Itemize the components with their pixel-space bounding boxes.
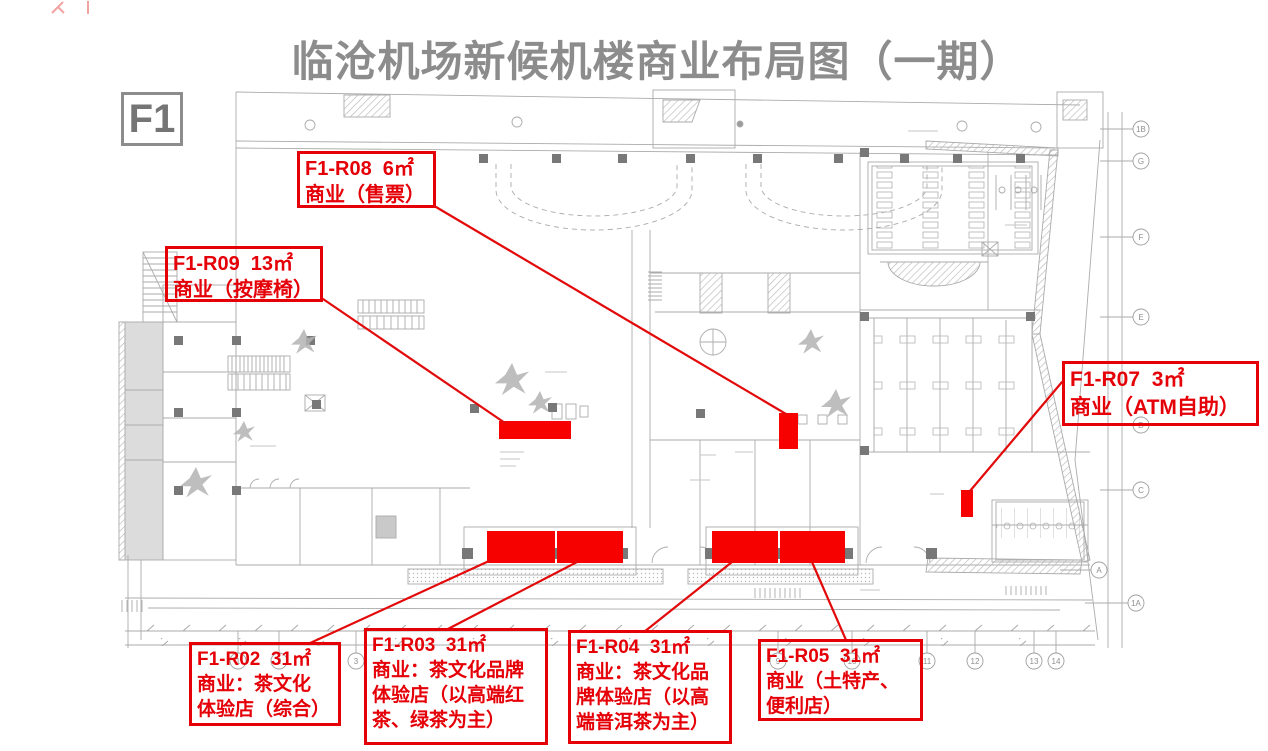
callout-line: F1-R04 31㎡	[576, 635, 724, 660]
floor-level-badge: F1	[121, 92, 183, 146]
grid-label: 1B	[1136, 125, 1146, 134]
shop-area-f1-r08	[779, 413, 798, 449]
callout-line: F1-R03 31㎡	[372, 633, 540, 658]
bottom-left-rooms	[236, 479, 470, 565]
plan-linework	[119, 90, 1133, 653]
right-waiting-block	[860, 152, 1041, 310]
callout-f1-r09: F1-R09 13㎡ 商业（按摩椅）	[165, 246, 323, 302]
leader-f1-r09	[323, 299, 505, 423]
grid-label: E	[1138, 313, 1143, 322]
callout-line: 体验店（以高端红	[372, 683, 540, 708]
callout-line: F1-R02 31㎡	[197, 647, 333, 672]
callout-line: 商业（售票）	[305, 182, 428, 208]
callout-line: 商业：茶文化品牌	[372, 658, 540, 683]
callout-line: 便利店）	[766, 694, 915, 719]
grid-label: F	[1139, 233, 1144, 242]
callout-line: 商业（ATM自助）	[1070, 394, 1251, 422]
callout-line: 端普洱茶为主）	[576, 710, 724, 735]
callout-f1-r04: F1-R04 31㎡ 商业：茶文化品 牌体验店（以高 端普洱茶为主）	[568, 630, 732, 744]
callout-f1-r03: F1-R03 31㎡ 商业：茶文化品牌 体验店（以高端红 茶、绿茶为主）	[364, 628, 548, 745]
corner-handwriting-mark	[52, 1, 88, 14]
grid-label: A	[1096, 566, 1102, 575]
callout-f1-r02: F1-R02 31㎡ 商业：茶文化 体验店（综合）	[189, 642, 341, 726]
shop-area-f1-r07	[961, 490, 973, 517]
callout-line: 商业（土特产、	[766, 669, 915, 694]
grid-label: 3	[354, 657, 359, 666]
grid-label: G	[1138, 157, 1144, 166]
callout-line: 茶、绿茶为主）	[372, 708, 540, 733]
callout-line: 商业：茶文化	[197, 672, 333, 697]
callout-f1-r08: F1-R08 6㎡ 商业（售票）	[297, 151, 436, 208]
shop-area-f1-r09	[499, 421, 571, 439]
shop-area-f1-r02	[487, 531, 555, 563]
callout-line: 牌体验店（以高	[576, 685, 724, 710]
callout-line: F1-R08 6㎡	[305, 156, 428, 182]
leader-f1-r08	[436, 207, 786, 414]
grid-label: 12	[971, 657, 980, 666]
shop-area-f1-r05	[780, 531, 845, 563]
stairs-and-elevator	[228, 300, 424, 538]
grid-label: 11	[923, 657, 932, 666]
grid-label: 13	[1030, 657, 1039, 666]
callout-line: 商业（按摩椅）	[173, 277, 315, 303]
callout-line: F1-R07 3㎡	[1070, 366, 1251, 394]
callout-line: 体验店（综合）	[197, 697, 333, 722]
callout-line: F1-R09 13㎡	[173, 251, 315, 277]
grid-label: C	[1138, 486, 1144, 495]
page-title: 临沧机场新候机楼商业布局图（一期）	[46, 28, 1268, 89]
grid-label: 14	[1052, 657, 1061, 666]
callout-f1-r07: F1-R07 3㎡ 商业（ATM自助）	[1062, 361, 1259, 426]
shop-area-f1-r03	[557, 531, 623, 563]
shop-area-f1-r04	[712, 531, 778, 563]
slide-floorplan-page: 临沧机场新候机楼商业布局图（一期） F1	[0, 0, 1268, 751]
plant-decorations	[180, 329, 851, 497]
callout-line: F1-R05 31㎡	[766, 644, 915, 669]
grid-label: 1A	[1131, 599, 1141, 608]
toilet-block	[992, 500, 1088, 562]
callout-line: 商业：茶文化品	[576, 660, 724, 685]
callout-f1-r05: F1-R05 31㎡ 商业（土特产、 便利店）	[758, 639, 923, 721]
